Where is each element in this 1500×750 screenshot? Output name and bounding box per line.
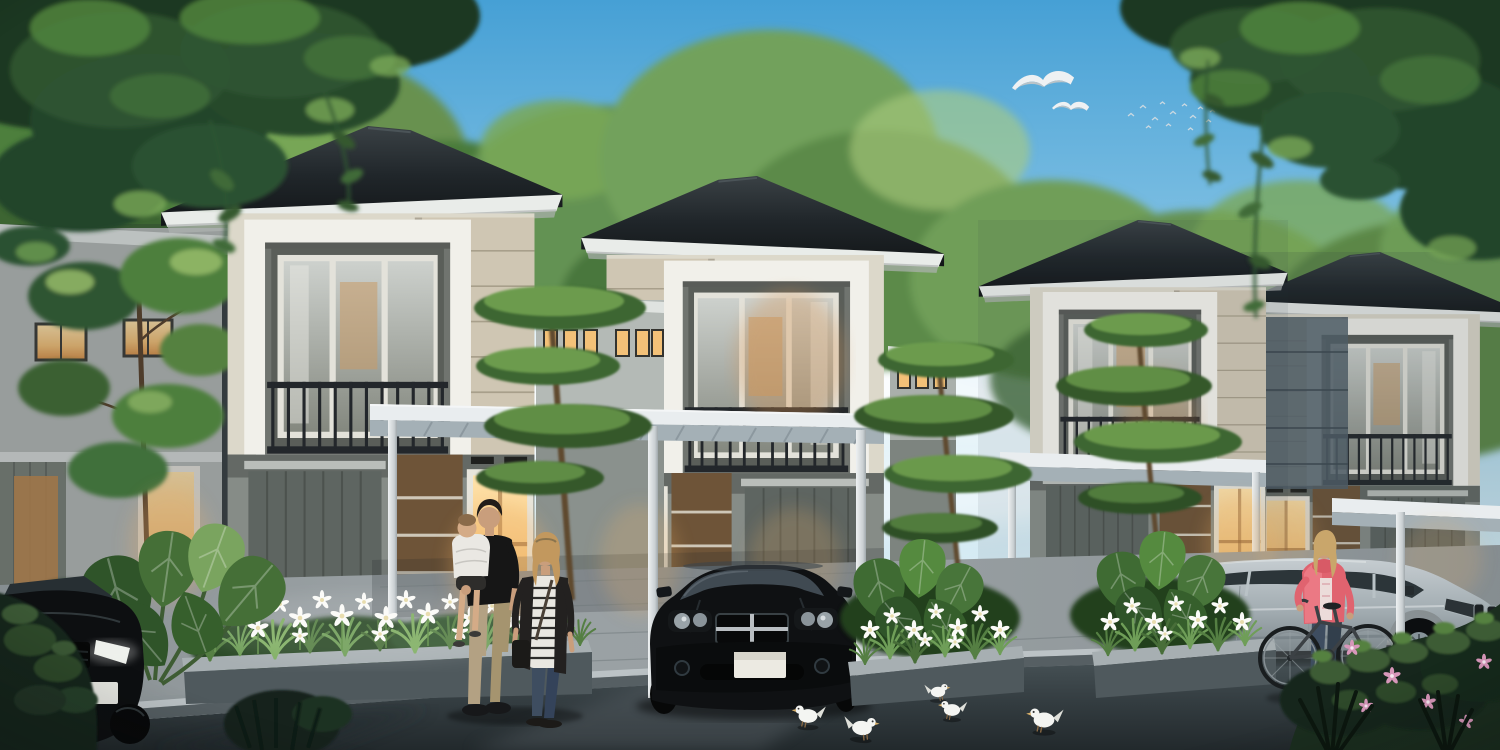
rendered-image: Photoreal architectural rendering of a r… [0,0,1500,750]
scene-canvas: Photoreal architectural rendering of a r… [0,0,1500,750]
vignette [0,0,1500,750]
